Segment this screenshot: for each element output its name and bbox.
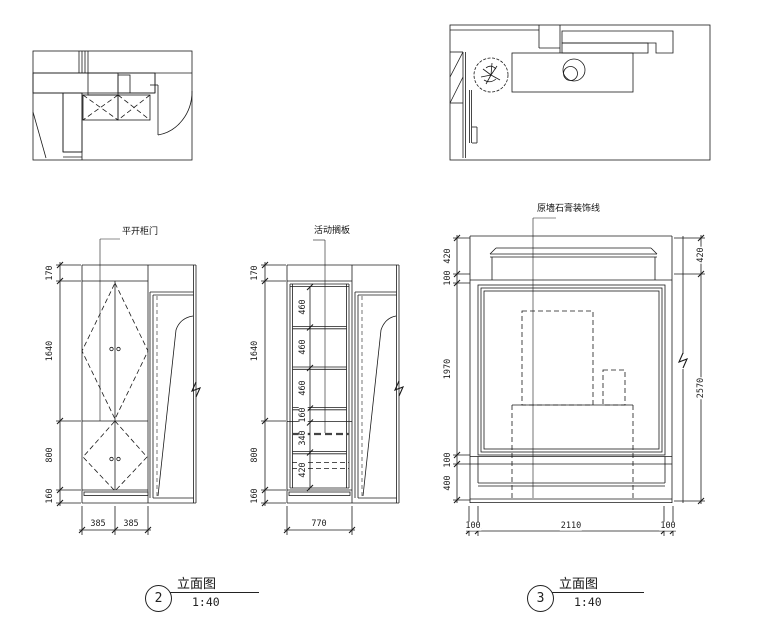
drawing-sheet: 平开柜门 170 1640 800 160 385 385 活动搁板 170 1… xyxy=(0,0,760,626)
dim-text: 1640 xyxy=(251,340,260,362)
panel-frame xyxy=(478,285,665,455)
dim-text: 2570 xyxy=(697,377,706,399)
elevation3-view xyxy=(470,218,687,503)
dim-text: 385 xyxy=(89,520,106,529)
dim-text: 160 xyxy=(299,406,308,423)
dim-text: 100 xyxy=(444,269,453,286)
callout-movable-shelf: 活动搁板 xyxy=(314,227,350,236)
break-symbol xyxy=(679,353,687,368)
dim-text: 1970 xyxy=(444,358,453,380)
callout-cabinet-door: 平开柜门 xyxy=(122,228,158,237)
caption-divider xyxy=(552,592,644,593)
dim-text: 420 xyxy=(697,246,706,263)
callout-gypsum-molding: 原墙石膏装饰线 xyxy=(537,205,600,214)
dim-text: 385 xyxy=(122,520,139,529)
dim-text: 2110 xyxy=(560,522,582,531)
room-door-middle xyxy=(355,292,397,498)
dim-text: 100 xyxy=(444,451,453,468)
dim-text: 100 xyxy=(464,522,481,531)
dim-text: 420 xyxy=(299,461,308,478)
view-scale: 1:40 xyxy=(574,597,602,609)
dim-text: 340 xyxy=(299,429,308,446)
room-door-left xyxy=(150,292,194,498)
caption-divider xyxy=(170,592,259,593)
dim-text: 160 xyxy=(251,487,260,504)
dim-text: 460 xyxy=(299,298,308,315)
plan-door-swing xyxy=(150,85,192,135)
dim-text: 460 xyxy=(299,338,308,355)
plan-detail-right xyxy=(450,25,710,160)
dim-text: 170 xyxy=(251,264,260,281)
view-scale: 1:40 xyxy=(192,597,220,609)
base-bands xyxy=(470,457,672,503)
view-number-badge: 3 xyxy=(527,585,554,612)
dim-text: 770 xyxy=(310,520,327,529)
plan-cabinet-boxes xyxy=(83,95,150,120)
view-title: 立面图 xyxy=(559,578,598,591)
dim-text: 420 xyxy=(444,247,453,264)
hidden-furniture-outlines xyxy=(512,311,633,499)
dim-text: 400 xyxy=(444,474,453,491)
dim-text: 170 xyxy=(46,264,55,281)
shelf-interior xyxy=(287,284,352,488)
cad-linework xyxy=(0,0,760,626)
plan-left-wall xyxy=(450,52,477,158)
dim-text: 100 xyxy=(659,522,676,531)
plan-detail-left xyxy=(33,51,192,160)
view-title: 立面图 xyxy=(177,578,216,591)
view-number-badge: 2 xyxy=(145,585,172,612)
dim-text: 800 xyxy=(46,446,55,463)
dim-text: 800 xyxy=(251,446,260,463)
dim-text: 160 xyxy=(46,487,55,504)
plan-plant xyxy=(474,58,508,92)
dim-text: 1640 xyxy=(46,340,55,362)
elevation2-left-view xyxy=(82,239,200,503)
crown-molding xyxy=(490,248,657,280)
dim-text: 460 xyxy=(299,379,308,396)
